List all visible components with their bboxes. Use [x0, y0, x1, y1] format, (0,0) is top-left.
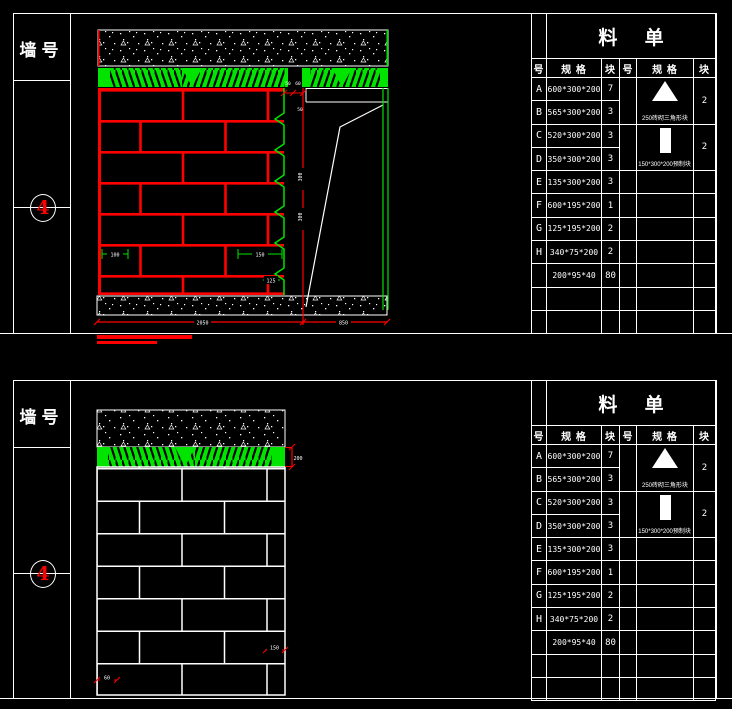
dim-label: 50: [297, 107, 303, 113]
row-no: F: [532, 561, 547, 584]
row-qty: 3: [602, 171, 620, 194]
triangle-block-icon: [652, 81, 678, 101]
cad-canvas: { "colors": {"cad_red":"#ff0000","cad_gr…: [0, 0, 732, 709]
wallno-cell-divider-2: [13, 447, 70, 448]
col-header-qty2: 块: [694, 426, 716, 445]
row-spec: 200*95*40: [547, 631, 602, 654]
row-spec: 600*300*200: [547, 78, 602, 101]
row-spec: 135*300*200: [547, 538, 602, 561]
row-no: G: [532, 585, 547, 608]
special-label: 250砖砌三角形块: [642, 112, 688, 121]
dim-label: 2050: [196, 321, 208, 327]
dim-label: 300: [298, 172, 304, 181]
panel-divider-line: [0, 333, 732, 334]
rect-block-icon: [660, 495, 671, 520]
table-corner-cell: [532, 381, 547, 426]
special-qty: 2: [694, 492, 716, 539]
row-spec: 200*95*40: [547, 264, 602, 287]
bottom-border-line: [0, 698, 732, 699]
material-table-title: 料 单: [547, 14, 716, 59]
row-spec: 125*195*200: [547, 218, 602, 241]
row-spec: 350*300*200: [547, 148, 602, 171]
col-header-spec2: 规 格: [637, 426, 694, 445]
wall-number-badge-2: 4: [30, 560, 56, 588]
row-qty: 3: [602, 515, 620, 538]
row-qty: 80: [602, 264, 620, 287]
row-spec: 600*300*200: [547, 445, 602, 468]
special-row-rect: 150*300*200预制块: [637, 125, 694, 172]
mortar-hatch-band-1: [98, 68, 388, 87]
row-qty: 2: [602, 218, 620, 241]
row-no: [532, 631, 547, 654]
row-spec: 600*195*200: [547, 194, 602, 217]
special-row-triangle: 250砖砌三角形块: [637, 78, 694, 125]
special-qty: 2: [694, 125, 716, 172]
concrete-slab-band-2: [97, 410, 285, 447]
row-spec: 340*75*200: [547, 608, 602, 631]
wall-number-value-1: 4: [36, 197, 49, 219]
col-header-qty: 块: [602, 426, 620, 445]
brick-wall-1: [98, 88, 284, 295]
row-no: F: [532, 194, 547, 217]
row-spec: 565*300*200: [547, 101, 602, 124]
row-spec: 340*75*200: [547, 241, 602, 264]
wall-detail-drawing-1: 50 60 50 300 300 100 150 125 2050 850: [70, 13, 531, 334]
row-no: B: [532, 101, 547, 124]
slope-line-1: [306, 105, 383, 307]
jamb-section-1: [306, 88, 388, 310]
row-qty: 1: [602, 194, 620, 217]
dim-label: 200: [293, 456, 302, 462]
col-header-no2: 号: [620, 59, 637, 78]
row-no: E: [532, 538, 547, 561]
col-header-qty2: 块: [694, 59, 716, 78]
mortar-hatch-band-2: [97, 447, 285, 467]
dim-label: 60: [295, 81, 301, 87]
row-no: [532, 264, 547, 287]
special-qty: 2: [694, 78, 716, 125]
row-no: B: [532, 468, 547, 491]
row-no: A: [532, 445, 547, 468]
row-qty: 7: [602, 445, 620, 468]
row-qty: 3: [602, 538, 620, 561]
dim-label: 60: [104, 676, 110, 682]
material-table-1: 料 单 号 规 格 块 号 规 格 块 A 600*300*200 7 B 56…: [531, 13, 716, 334]
dim-label: 150: [270, 646, 279, 652]
row-qty: 1: [602, 561, 620, 584]
row-no: A: [532, 78, 547, 101]
row-qty: 80: [602, 631, 620, 654]
special-qty: 2: [694, 445, 716, 492]
dim-label: 125: [266, 279, 275, 285]
row-qty: 2: [602, 241, 620, 264]
table-corner-cell: [532, 14, 547, 59]
revision-bar-short: [97, 341, 157, 344]
special-label: 250砖砌三角形块: [642, 479, 688, 488]
material-table-title: 料 单: [547, 381, 716, 426]
wall-detail-drawing-2: 200 150 60 1865: [70, 380, 531, 699]
wall-number-heading-2: 墙号: [13, 403, 70, 428]
row-spec: 125*195*200: [547, 585, 602, 608]
row-qty: 3: [602, 148, 620, 171]
row-no: C: [532, 492, 547, 515]
row-qty: 3: [602, 468, 620, 491]
row-spec: 520*300*200: [547, 125, 602, 148]
dim-label: 150: [255, 253, 264, 259]
row-qty: 3: [602, 125, 620, 148]
col-header-no: 号: [532, 426, 547, 445]
special-label: 150*300*200预制块: [639, 526, 692, 535]
special-row-rect: 150*300*200预制块: [637, 492, 694, 539]
special-row-triangle: 250砖砌三角形块: [637, 445, 694, 492]
rect-block-icon: [660, 128, 671, 153]
col-header-spec: 规 格: [547, 59, 602, 78]
revision-bar-long: [97, 335, 192, 339]
wallno-cell-divider-1: [13, 80, 70, 81]
row-qty: 2: [602, 608, 620, 631]
row-qty: 2: [602, 585, 620, 608]
wall-number-value-2: 4: [36, 563, 49, 585]
row-no: C: [532, 125, 547, 148]
col-header-spec2: 规 格: [637, 59, 694, 78]
dim-label: 50: [285, 81, 291, 87]
triangle-block-icon: [652, 448, 678, 468]
row-no: E: [532, 171, 547, 194]
row-no: H: [532, 241, 547, 264]
row-spec: 565*300*200: [547, 468, 602, 491]
row-spec: 520*300*200: [547, 492, 602, 515]
row-spec: 135*300*200: [547, 171, 602, 194]
row-no: D: [532, 148, 547, 171]
concrete-slab-band-1: [98, 30, 388, 66]
row-no: H: [532, 608, 547, 631]
col-header-no: 号: [532, 59, 547, 78]
row-no: G: [532, 218, 547, 241]
col-header-spec: 规 格: [547, 426, 602, 445]
floor-band-1: [97, 296, 387, 315]
row-spec: 350*300*200: [547, 515, 602, 538]
row-qty: 3: [602, 101, 620, 124]
dim-label: 300: [298, 212, 304, 221]
special-label: 150*300*200预制块: [639, 159, 692, 168]
wall-number-heading-1: 墙号: [13, 36, 70, 61]
wall-number-badge-1: 4: [30, 194, 56, 222]
material-table-2: 料 单 号 规 格 块 号 规 格 块 A 600*300*200 7 B 56…: [531, 380, 716, 701]
row-qty: 3: [602, 492, 620, 515]
row-no: D: [532, 515, 547, 538]
brick-wall-2: [97, 467, 285, 695]
dim-label: 100: [110, 253, 119, 259]
col-header-no2: 号: [620, 426, 637, 445]
dim-label: 850: [339, 321, 348, 327]
row-qty: 7: [602, 78, 620, 101]
row-spec: 600*195*200: [547, 561, 602, 584]
col-header-qty: 块: [602, 59, 620, 78]
